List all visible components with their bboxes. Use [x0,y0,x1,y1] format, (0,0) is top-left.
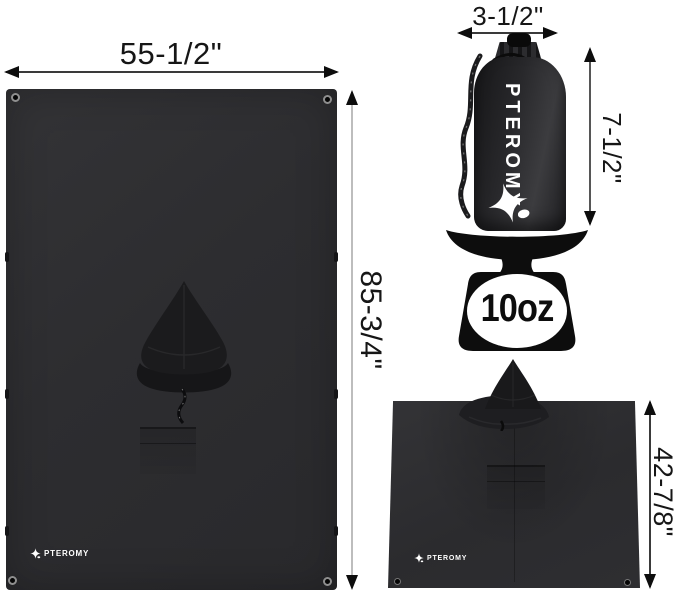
arrowhead-right-icon [324,66,339,78]
tarp-width-dimension-label: 55-1/2" [71,36,271,72]
sack-width-dimension-line [459,32,556,34]
arrowhead-down-icon [346,575,358,590]
pteromy-star-icon [414,553,424,563]
cord-lock-icon [507,33,531,47]
sack-height-dimension-label: 7-1/2" [592,68,632,228]
edge-loop-icon [5,252,9,262]
grommet-icon [8,576,17,585]
arrowhead-up-icon [346,90,358,105]
grommet-icon [323,95,332,104]
pteromy-star-icon [482,177,533,230]
stuff-sack-image: PTEROMY [474,57,566,231]
grommet-icon [394,578,401,585]
grommet-icon [323,577,332,586]
arrowhead-left-icon [457,27,472,39]
arrowhead-down-icon [644,574,656,589]
edge-loop-icon [334,389,338,399]
tarp-brand-text: PTEROMY [44,549,89,558]
poncho-hood-icon [477,357,549,411]
arrowhead-up-icon [584,47,596,62]
tarp-flat-image: PTEROMY [6,89,337,590]
edge-loop-icon [334,526,338,536]
poncho-height-dimension-label: 42-7/8" [643,412,679,572]
grommet-icon [11,93,20,102]
poncho-pocket-flap [487,467,545,482]
product-dimension-diagram: 55-1/2" PTEROMY [0,0,679,596]
grommet-icon [624,579,631,586]
tarp-brand-logo: PTEROMY [30,548,89,559]
hood-icon [126,277,242,425]
edge-loop-icon [5,526,9,536]
tarp-pocket [140,427,196,474]
tarp-height-dimension-label: 85-3/4" [350,240,390,400]
edge-loop-icon [5,389,9,399]
sack-height-dimension-line [589,49,591,224]
edge-loop-icon [334,252,338,262]
tarp-width-dimension-line [6,71,337,73]
arrowhead-right-icon [543,27,558,39]
weight-value: 10oz [462,287,571,331]
poncho-brand-logo: PTEROMY [414,553,467,563]
pteromy-star-icon [30,548,41,559]
arrowhead-left-icon [4,66,19,78]
poncho-brand-text: PTEROMY [427,555,467,562]
tarp-pocket-flap [140,429,196,444]
poncho-pocket [487,465,545,509]
